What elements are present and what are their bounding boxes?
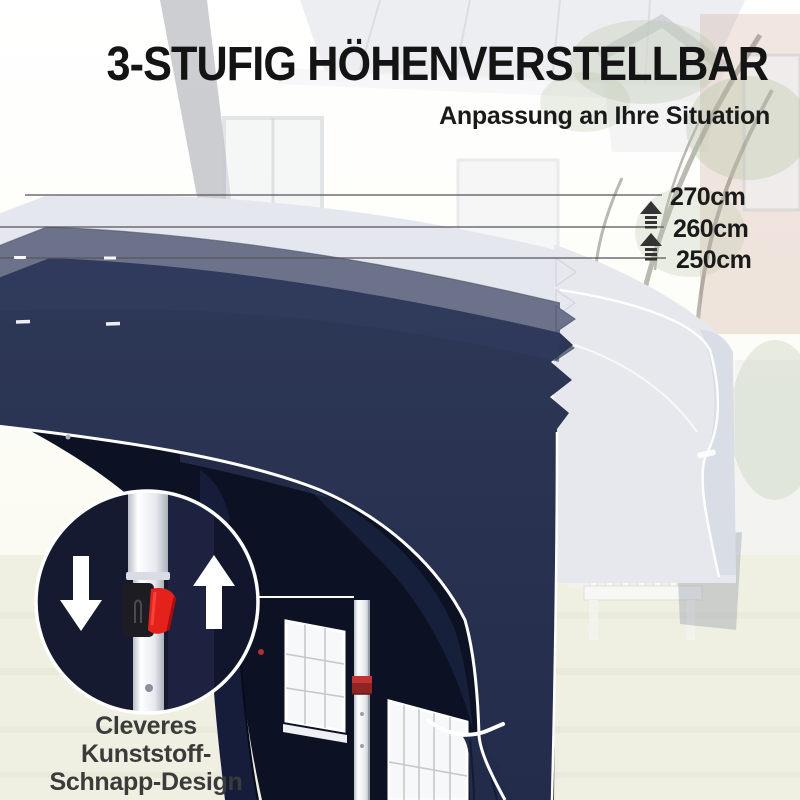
page-title: 3-STUFIG HÖHENVERSTELLBAR [44,41,764,89]
caption-line-2: Kunststoff- [14,740,278,768]
caption-line-1: Cleveres [14,712,278,740]
inset-pole-upper [128,489,168,579]
height-label-260: 260cm [673,215,748,244]
pole-rivet [145,684,153,692]
height-label-250: 250cm [676,246,751,275]
zipper-pull [258,649,264,655]
zipper-pull-top [66,435,71,440]
tent-leg-pole [352,600,372,800]
height-label-270: 270cm [670,183,745,212]
caption-line-3: Schnapp-Design [14,768,278,796]
inset-caption: Cleveres Kunststoff- Schnapp-Design [14,712,278,796]
product-infographic: 3-STUFIG HÖHENVERSTELLBAR Anpassung an I… [0,0,800,800]
page-subtitle: Anpassung an Ihre Situation [439,102,770,131]
